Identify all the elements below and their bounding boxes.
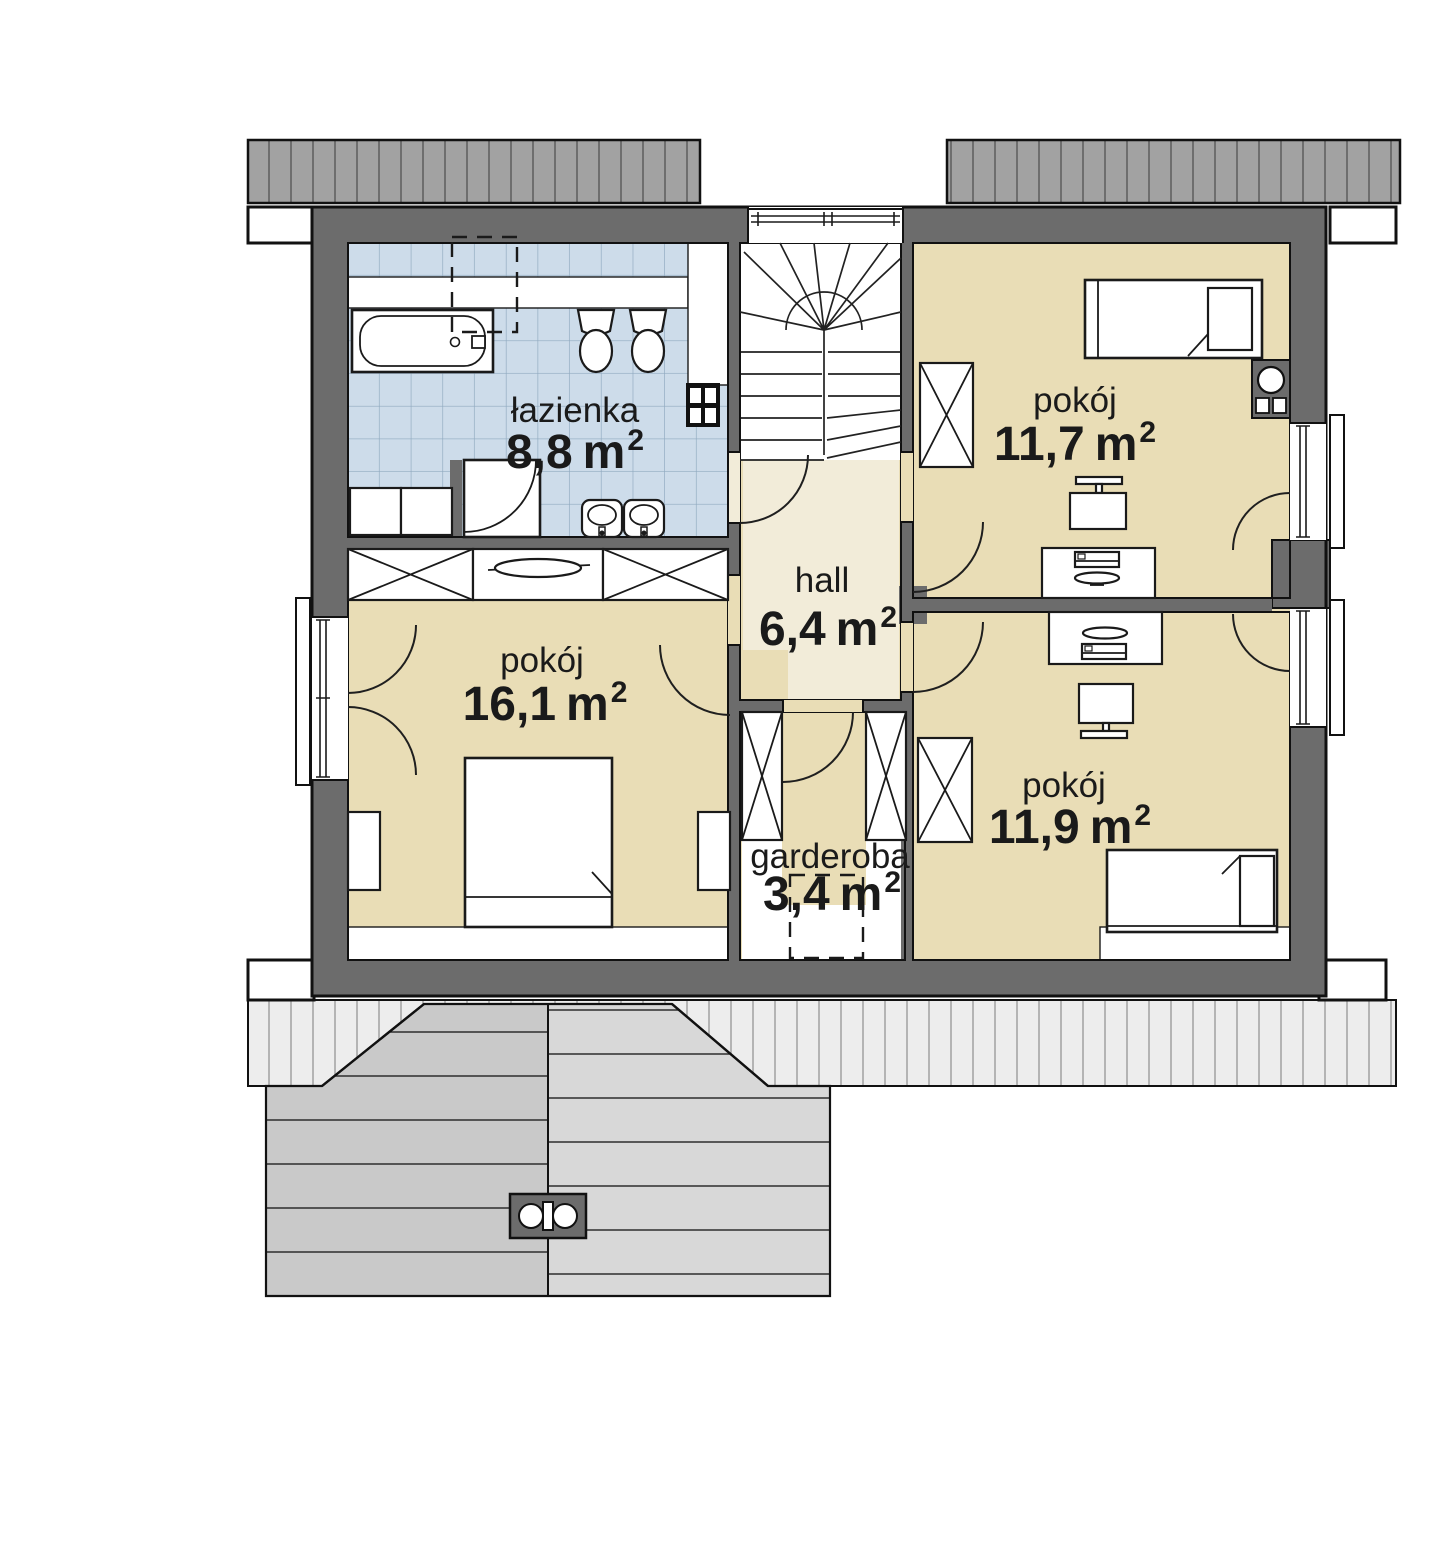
- room-name-pokoj-dolny: pokój: [1022, 766, 1106, 805]
- room-name-pokoj-gorny: pokój: [1033, 381, 1117, 420]
- desk-with-computer: [1042, 548, 1155, 598]
- chimney: [510, 1194, 586, 1238]
- toilet: [578, 310, 614, 372]
- roof-strip-top-left: [248, 140, 700, 203]
- wardrobe: [603, 549, 728, 600]
- wardrobe: [866, 712, 906, 840]
- single-bed: [1085, 280, 1262, 358]
- wardrobe: [918, 738, 972, 842]
- dresser: [473, 549, 603, 600]
- tv-stand: [1079, 684, 1133, 738]
- room-area-pokoj-dolny: 11,9m2: [989, 799, 1151, 854]
- desk-with-computer: [1049, 612, 1162, 664]
- roof-strip-top-right: [947, 140, 1400, 203]
- floor-plan-drawing: łazienka 8,8m2 pokój 11,7m2 hall 6,4m2 p…: [0, 0, 1431, 1551]
- double-bed: [465, 758, 612, 927]
- room-area-pokoj-gorny: 11,7m2: [994, 416, 1156, 471]
- nightstand: [348, 812, 380, 890]
- room-name-pokoj-lewy: pokój: [500, 641, 584, 680]
- bathroom-cabinet: [350, 488, 452, 535]
- wardrobe: [920, 363, 973, 467]
- room-name-lazienka: łazienka: [511, 391, 640, 430]
- washbasin: [1252, 360, 1290, 418]
- single-bed: [1107, 850, 1277, 932]
- bidet: [630, 310, 666, 372]
- wardrobe: [348, 549, 473, 600]
- wardrobe: [742, 712, 782, 840]
- ventilation-shaft-icon: [686, 383, 720, 427]
- bathtub: [352, 310, 493, 372]
- tv-stand: [1070, 477, 1126, 529]
- room-name-hall: hall: [795, 561, 849, 600]
- nightstand: [698, 812, 730, 890]
- room-area-pokoj-lewy: 16,1m2: [463, 676, 628, 731]
- floor-plan-page: łazienka 8,8m2 pokój 11,7m2 hall 6,4m2 p…: [0, 0, 1431, 1551]
